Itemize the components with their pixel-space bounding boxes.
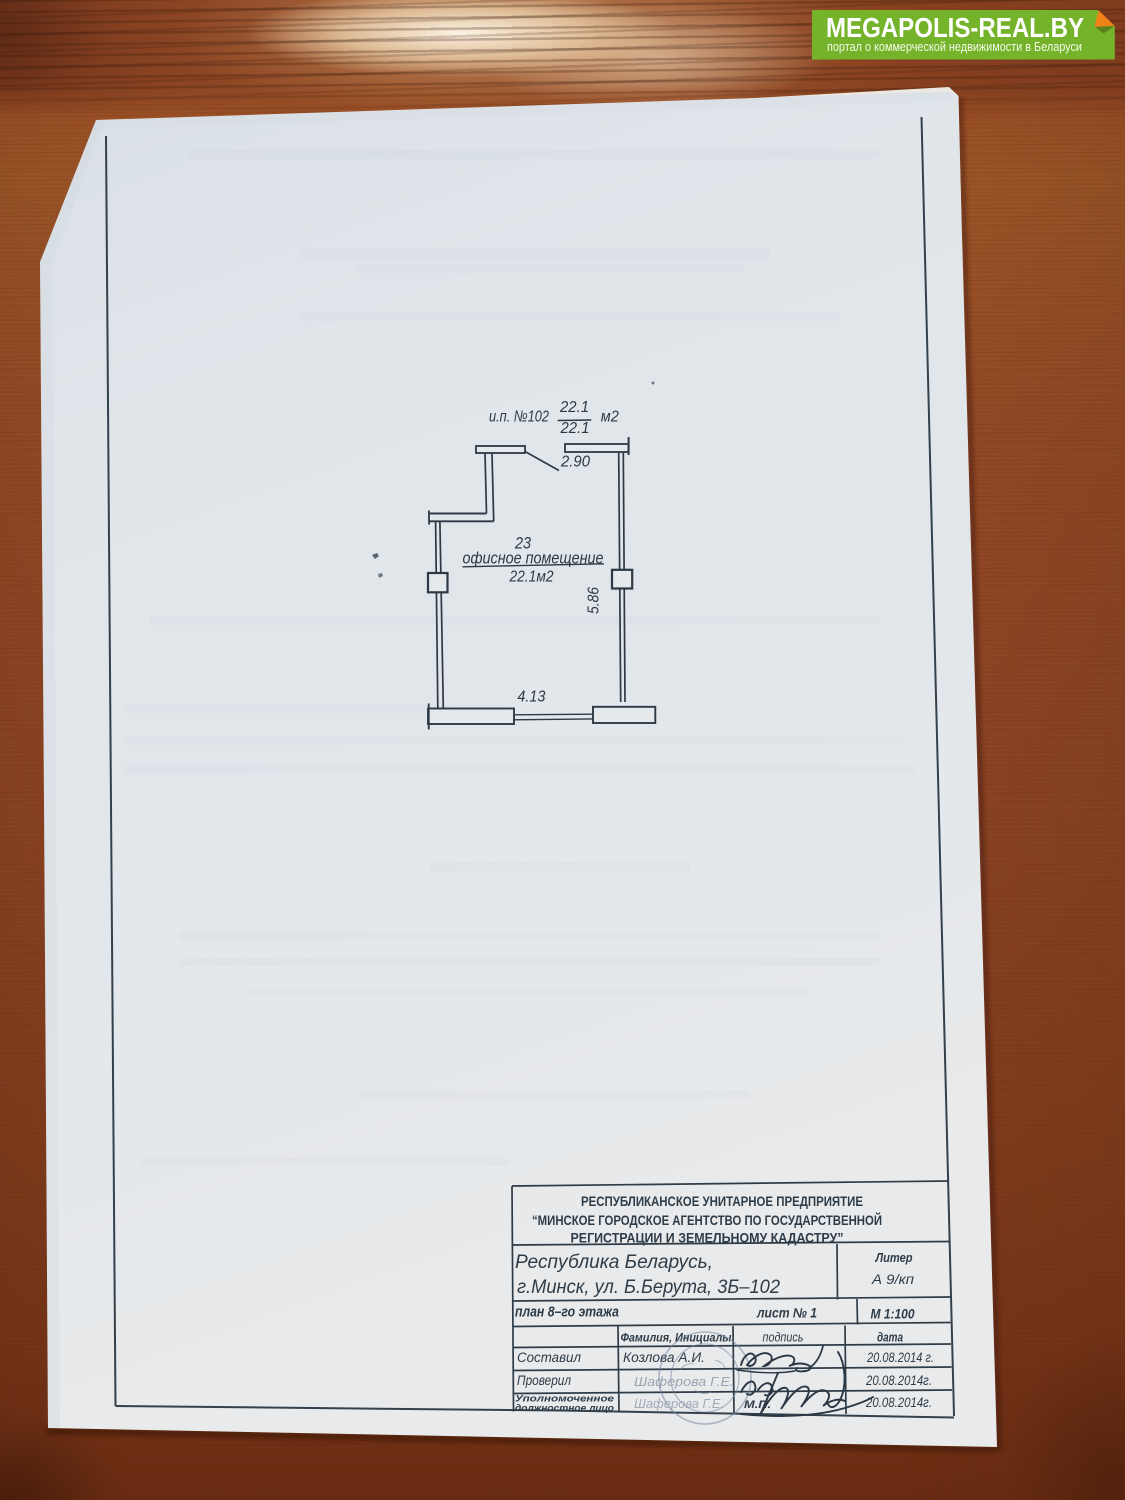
svg-text:портал о коммерческой недвижим: портал о коммерческой недвижимости в Бел…: [827, 39, 1082, 54]
